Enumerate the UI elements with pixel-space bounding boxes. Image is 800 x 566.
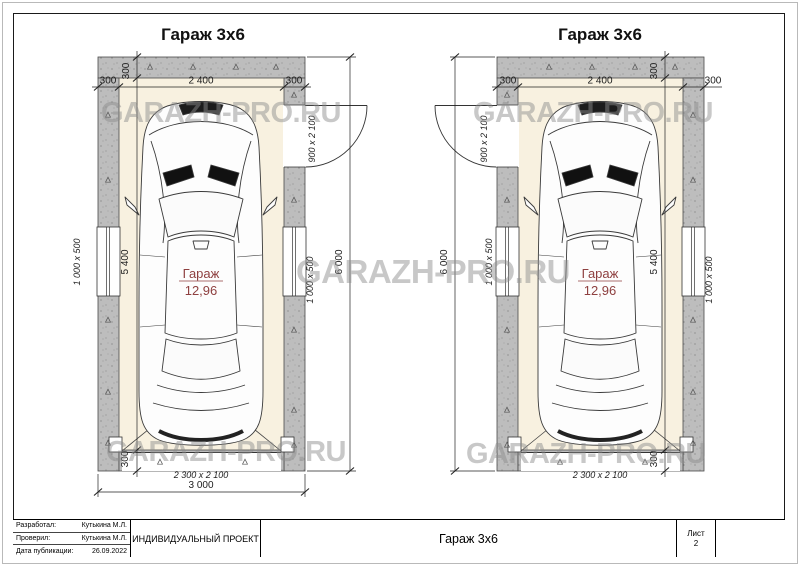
watermark: GARAZH-PRO.RU [473, 99, 713, 128]
project-type-cell: ИНДИВИДУАЛЬНЫЙ ПРОЕКТ [130, 520, 260, 557]
room-name-right: Гараж [582, 266, 619, 281]
published-label: Дата публикации: [16, 548, 73, 555]
dim-interior-width: 2 400 [587, 76, 612, 87]
drawing-title: Гараж 3х6 [439, 532, 498, 546]
dim-wall-top: 300 [649, 62, 660, 79]
plan-left-title: Гараж 3х6 [161, 25, 245, 44]
checked-label: Проверил: [16, 535, 50, 542]
plan-right-title: Гараж 3х6 [558, 25, 642, 44]
sheet-number: 2 [694, 539, 698, 549]
title-block-signatures: Разработал: Кутькина М.Л. Проверил: Куть… [13, 520, 130, 557]
dim-interior-length: 5 400 [120, 249, 131, 274]
checked-value: Кутькина М.Л. [82, 535, 127, 542]
project-type: ИНДИВИДУАЛЬНЫЙ ПРОЕКТ [132, 534, 259, 544]
watermark: GARAZH-PRO.RU [466, 440, 706, 469]
empty-cell [715, 520, 785, 557]
label-window-west: 1 000 x 500 [72, 238, 82, 285]
drawing-sheet: { "watermark": { "text": "GARAZH-PRO.RU"… [0, 0, 800, 566]
dim-wall-left: 300 [500, 76, 517, 87]
watermark: GARAZH-PRO.RU [106, 438, 346, 467]
row-developed: Разработал: Кутькина М.Л. [13, 520, 130, 533]
room-name-left: Гараж [183, 266, 220, 281]
sheet-cell: Лист 2 [676, 520, 715, 557]
row-published: Дата публикации: 26.09.2022 [13, 545, 130, 557]
watermark: GARAZH-PRO.RU [296, 255, 570, 288]
sheet-label: Лист [687, 529, 704, 539]
label-gate: 2 300 x 2 100 [572, 470, 628, 480]
dim-interior-length: 5 400 [649, 249, 660, 274]
label-window-east: 1 000 x 500 [704, 256, 714, 303]
dim-wall-top: 300 [121, 62, 132, 79]
dim-wall-right: 300 [286, 76, 303, 87]
watermark: GARAZH-PRO.RU [101, 99, 341, 128]
dim-interior-width: 2 400 [188, 76, 213, 87]
dim-total-width: 3 000 [188, 480, 213, 491]
plan-left-window-west [97, 227, 120, 296]
drawing-title-cell: Гараж 3х6 [260, 520, 676, 557]
title-block: Разработал: Кутькина М.Л. Проверил: Куть… [13, 519, 785, 557]
published-value: 26.09.2022 [92, 548, 127, 555]
developed-label: Разработал: [16, 522, 56, 529]
row-checked: Проверил: Кутькина М.Л. [13, 533, 130, 546]
room-area-left: 12,96 [185, 283, 218, 298]
plan-right-window-east [682, 227, 705, 296]
label-gate: 2 300 x 2 100 [173, 470, 229, 480]
dim-wall-right: 300 [705, 76, 722, 87]
room-area-right: 12,96 [584, 283, 617, 298]
developed-value: Кутькина М.Л. [82, 522, 127, 529]
dim-wall-left: 300 [100, 76, 117, 87]
